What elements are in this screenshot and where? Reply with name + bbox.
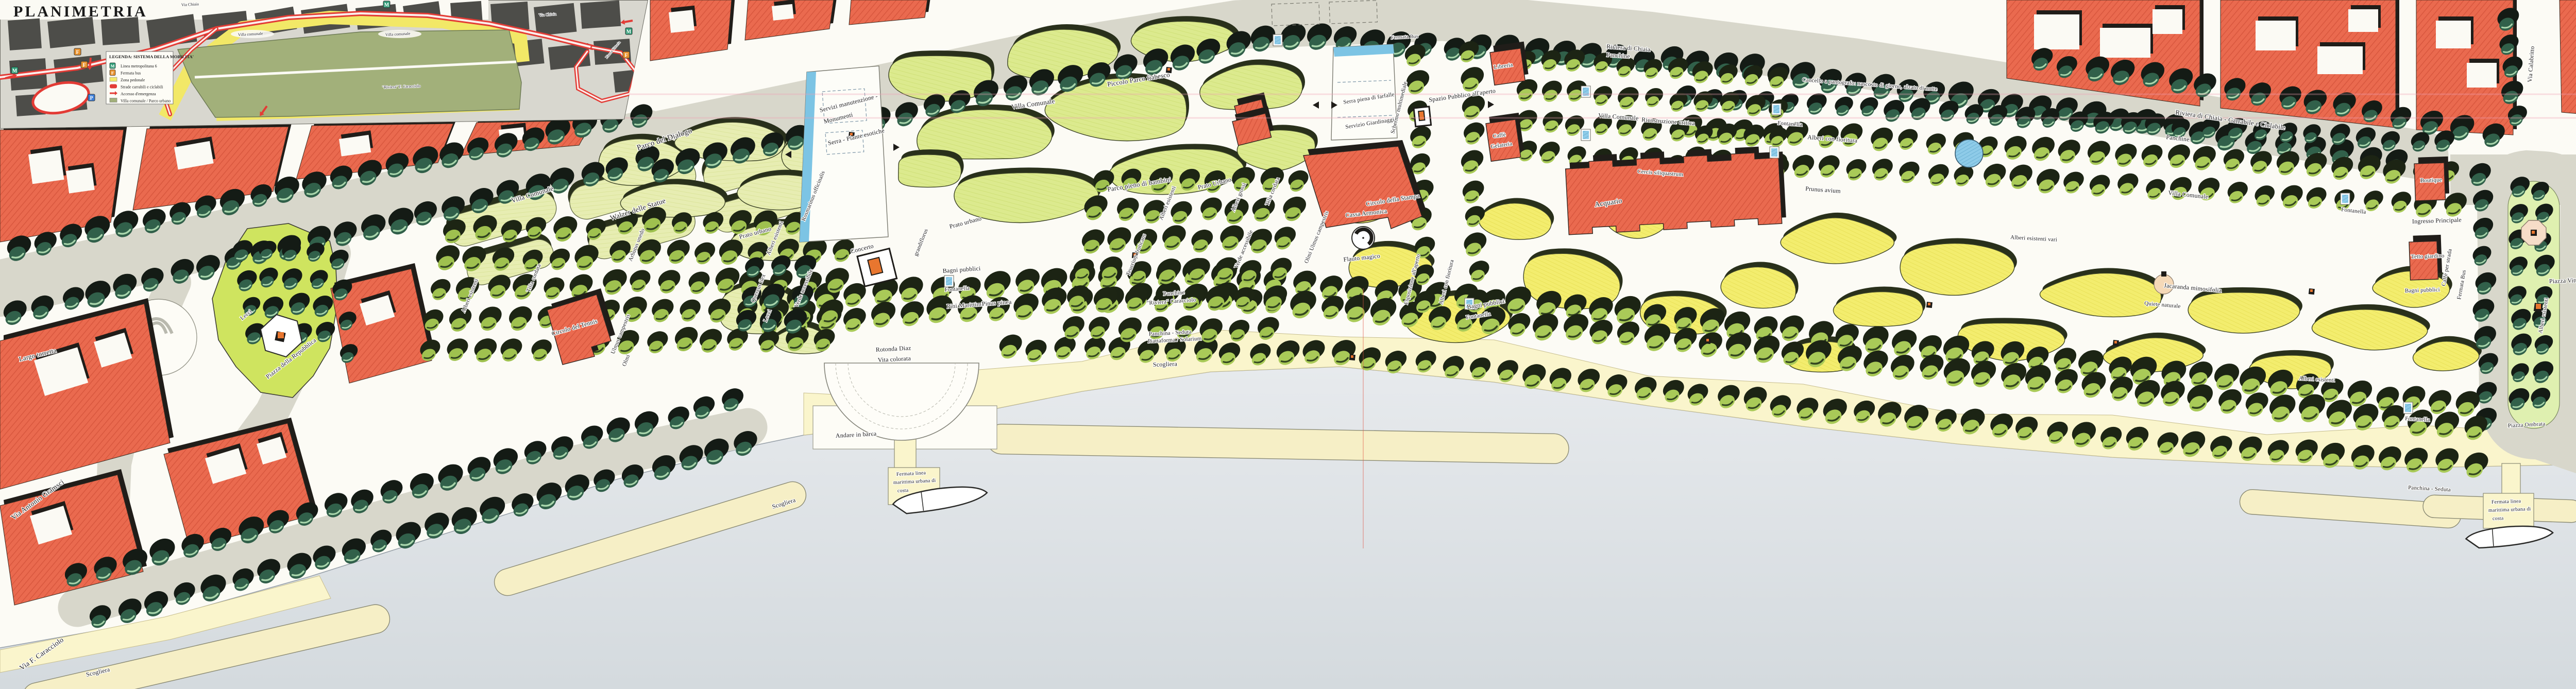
road-plaza [2569,216,2576,303]
inset-city-block [580,1,621,29]
courtyard [2467,63,2497,88]
map-label: costa [2493,515,2504,522]
map-label: Tetto giardino [2411,253,2445,260]
courtyard [2348,9,2378,32]
building [1486,119,1521,161]
legend-item-label: Villa comunale / Parco urbano [121,99,171,104]
courtyard [28,150,64,184]
svg-text:M: M [12,68,18,74]
site-plan-canvas: Largo torrettaVia Antonio GramsciVia F. … [0,0,2576,689]
fontanella [1275,36,1281,44]
fontanella [2405,404,2411,412]
map-label: Fermata linea [2492,498,2521,505]
building [2409,241,2438,280]
courtyard [2100,28,2150,58]
pond [1955,140,1983,167]
inset-city-block [534,3,577,36]
fontanella [946,277,952,285]
courtyard [2317,46,2363,74]
courtyard [2436,21,2471,48]
courtyard [772,4,794,21]
map-label: Piazza Vittoria [2549,276,2576,285]
site-plan-svg: Largo torrettaVia Antonio GramsciVia F. … [0,0,2576,689]
courtyard [2256,21,2296,50]
legend-item-label: Fermata bus [121,71,141,76]
legend-item: FFermata bus [110,70,141,76]
svg-text:M: M [384,3,389,8]
courtyard [2034,14,2079,49]
map-label: costa [897,488,909,494]
villa-swatch [110,98,117,102]
inset-city-block [47,17,95,48]
inset-city-block [101,17,140,45]
lawn-blob [899,154,961,187]
fontanella [1771,148,1777,157]
svg-text:M: M [626,29,632,35]
legend-item-label: Zona pedonale [121,78,145,82]
inset-label: Via Chiaia [181,2,199,7]
map-title: PLANIMETRIA [13,3,148,20]
svg-text:P: P [90,96,93,101]
inset-map: MMMFFFPVia ChiaiaVia ChiaiaVilla comunal… [0,0,648,129]
svg-text:M: M [110,63,114,68]
map-label: Boutique [2420,177,2442,184]
legend-item-label: Accesso d'emergenza [121,92,156,96]
svg-text:F: F [111,71,114,76]
legend-item-label: Linea metropolitana 6 [121,64,157,68]
svg-text:F: F [624,53,628,59]
map-label: Scogliera [1153,360,1178,368]
legend-title: LEGENDA: SISTEMA DELLA MOBILITA' [109,54,194,59]
fontanella [1773,105,1780,113]
fontanella [2342,195,2348,203]
svg-text:F: F [82,63,86,68]
map-label: Bagni pubblici [2405,287,2440,294]
strade-swatch [110,84,117,89]
courtyard [669,10,694,33]
svg-text:F: F [76,50,79,56]
zona-pedonale-swatch [110,77,117,81]
legend-item-label: Strade carrabili e ciclabili [121,85,163,90]
inset-city-block [8,19,42,50]
city-block [2560,0,2576,124]
map-label: Fontanella [2405,416,2430,423]
courtyard [2153,9,2182,34]
fontanella [1583,131,1589,139]
courtyard [66,167,95,194]
